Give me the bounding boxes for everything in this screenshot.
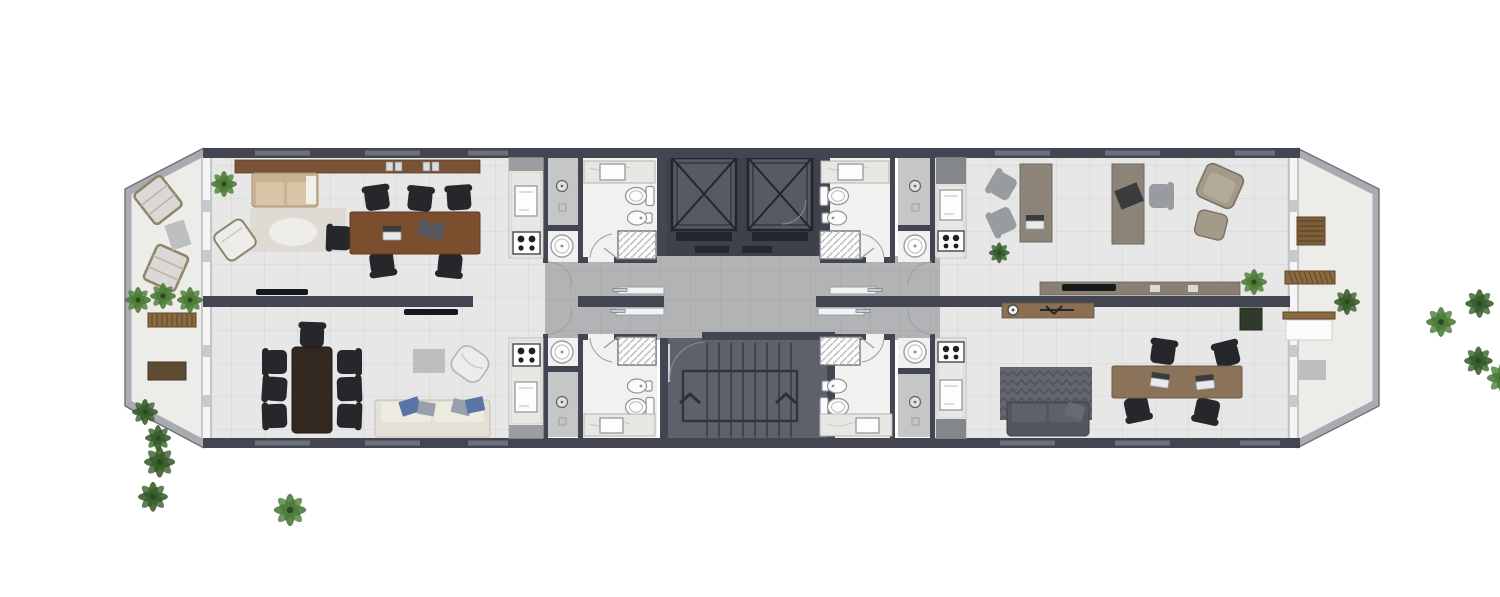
media-credenza bbox=[1040, 282, 1240, 295]
lobby-bench bbox=[695, 246, 729, 253]
stove bbox=[938, 342, 964, 362]
conference-table bbox=[350, 212, 480, 254]
throw-blanket bbox=[306, 176, 316, 204]
floor-plan-stage: Architectural floor plan: elongated stor… bbox=[0, 0, 1500, 597]
vanity-sink bbox=[600, 418, 623, 433]
base-cabinet bbox=[509, 425, 543, 438]
decor-object bbox=[1188, 285, 1198, 292]
elevator-core bbox=[657, 148, 830, 256]
door-handle bbox=[611, 310, 625, 313]
sliding-door-lower-right-unit bbox=[818, 308, 870, 315]
bidet bbox=[628, 379, 653, 393]
kitchenette-lower-left bbox=[509, 338, 543, 438]
laptop bbox=[1026, 215, 1044, 229]
fridge bbox=[936, 158, 966, 184]
wall-shelf bbox=[235, 160, 480, 173]
lounge bbox=[1000, 367, 1092, 436]
desk bbox=[1112, 366, 1242, 398]
washbasin-ll bbox=[551, 341, 573, 363]
toilet bbox=[626, 187, 655, 206]
washbasin-ul bbox=[551, 235, 573, 257]
potted-plant bbox=[1426, 307, 1456, 337]
right-terrace bbox=[1290, 148, 1379, 448]
stove bbox=[938, 231, 964, 251]
kitchenette-lower-right bbox=[936, 338, 966, 438]
floor-mat bbox=[413, 349, 445, 373]
tv bbox=[256, 289, 308, 295]
fridge bbox=[509, 158, 543, 171]
slatted-table bbox=[1297, 217, 1325, 245]
desk bbox=[1020, 164, 1052, 242]
right-terrace-floor bbox=[1290, 150, 1376, 446]
washbasin-ur bbox=[904, 235, 926, 257]
bench bbox=[1283, 312, 1335, 340]
floor-plan bbox=[0, 0, 1500, 597]
mid-wall-left bbox=[203, 296, 473, 307]
potted-plant bbox=[1241, 269, 1267, 295]
laptop bbox=[1195, 374, 1214, 390]
elevator-cab-left bbox=[672, 158, 736, 241]
decor-object bbox=[1150, 285, 1160, 292]
elevator-sill bbox=[676, 232, 732, 241]
dining-table bbox=[292, 347, 332, 433]
white-table bbox=[1286, 320, 1332, 340]
sofa bbox=[375, 396, 490, 437]
bidet bbox=[822, 379, 847, 393]
toilet bbox=[820, 187, 849, 206]
tv bbox=[1062, 284, 1116, 291]
sliding-door-upper-right-unit bbox=[830, 287, 882, 294]
potted-plant bbox=[1487, 362, 1500, 393]
door-handle bbox=[868, 289, 882, 292]
mid-wall-left-stub bbox=[578, 296, 664, 307]
sliding-door-lower-left-unit bbox=[611, 308, 664, 315]
vanity-sink bbox=[856, 418, 879, 433]
kitchen-sink bbox=[940, 380, 962, 410]
sofa bbox=[1007, 401, 1089, 436]
bidet bbox=[628, 211, 653, 225]
laptop bbox=[383, 226, 401, 240]
bench bbox=[148, 313, 196, 327]
washbasin-lr bbox=[904, 341, 926, 363]
floor-mat bbox=[1298, 360, 1326, 380]
kitchenette-upper-left bbox=[509, 158, 543, 258]
kitchen-sink bbox=[515, 382, 537, 412]
potted-plant bbox=[211, 171, 237, 197]
vanity-sink bbox=[838, 164, 863, 180]
vanity-sink bbox=[600, 164, 625, 180]
bidet bbox=[822, 211, 847, 225]
bench bbox=[1285, 271, 1335, 284]
stair-top-wall bbox=[702, 332, 835, 340]
stairwell bbox=[660, 332, 835, 446]
planter-box bbox=[1240, 308, 1262, 330]
elevator-cab-right bbox=[748, 158, 812, 241]
stair-background bbox=[660, 338, 835, 446]
fluffy-rug bbox=[269, 218, 317, 246]
kitchen-sink bbox=[940, 190, 962, 220]
kitchenette-upper-right bbox=[936, 158, 966, 258]
lobby-bench bbox=[742, 246, 772, 253]
base-cabinet bbox=[936, 419, 966, 438]
elevator-sill bbox=[752, 232, 808, 241]
tv bbox=[404, 309, 458, 315]
door-handle bbox=[856, 310, 870, 313]
sofa bbox=[252, 173, 318, 207]
sliding-door-upper-left-unit bbox=[613, 287, 664, 294]
stove bbox=[513, 344, 540, 366]
laptop bbox=[1150, 372, 1170, 388]
coffee-table bbox=[148, 362, 186, 380]
potted-plant bbox=[274, 494, 307, 527]
door-handle bbox=[613, 289, 627, 292]
stove bbox=[513, 232, 540, 254]
coffee-console bbox=[1002, 303, 1094, 318]
kitchen-sink bbox=[515, 186, 537, 216]
